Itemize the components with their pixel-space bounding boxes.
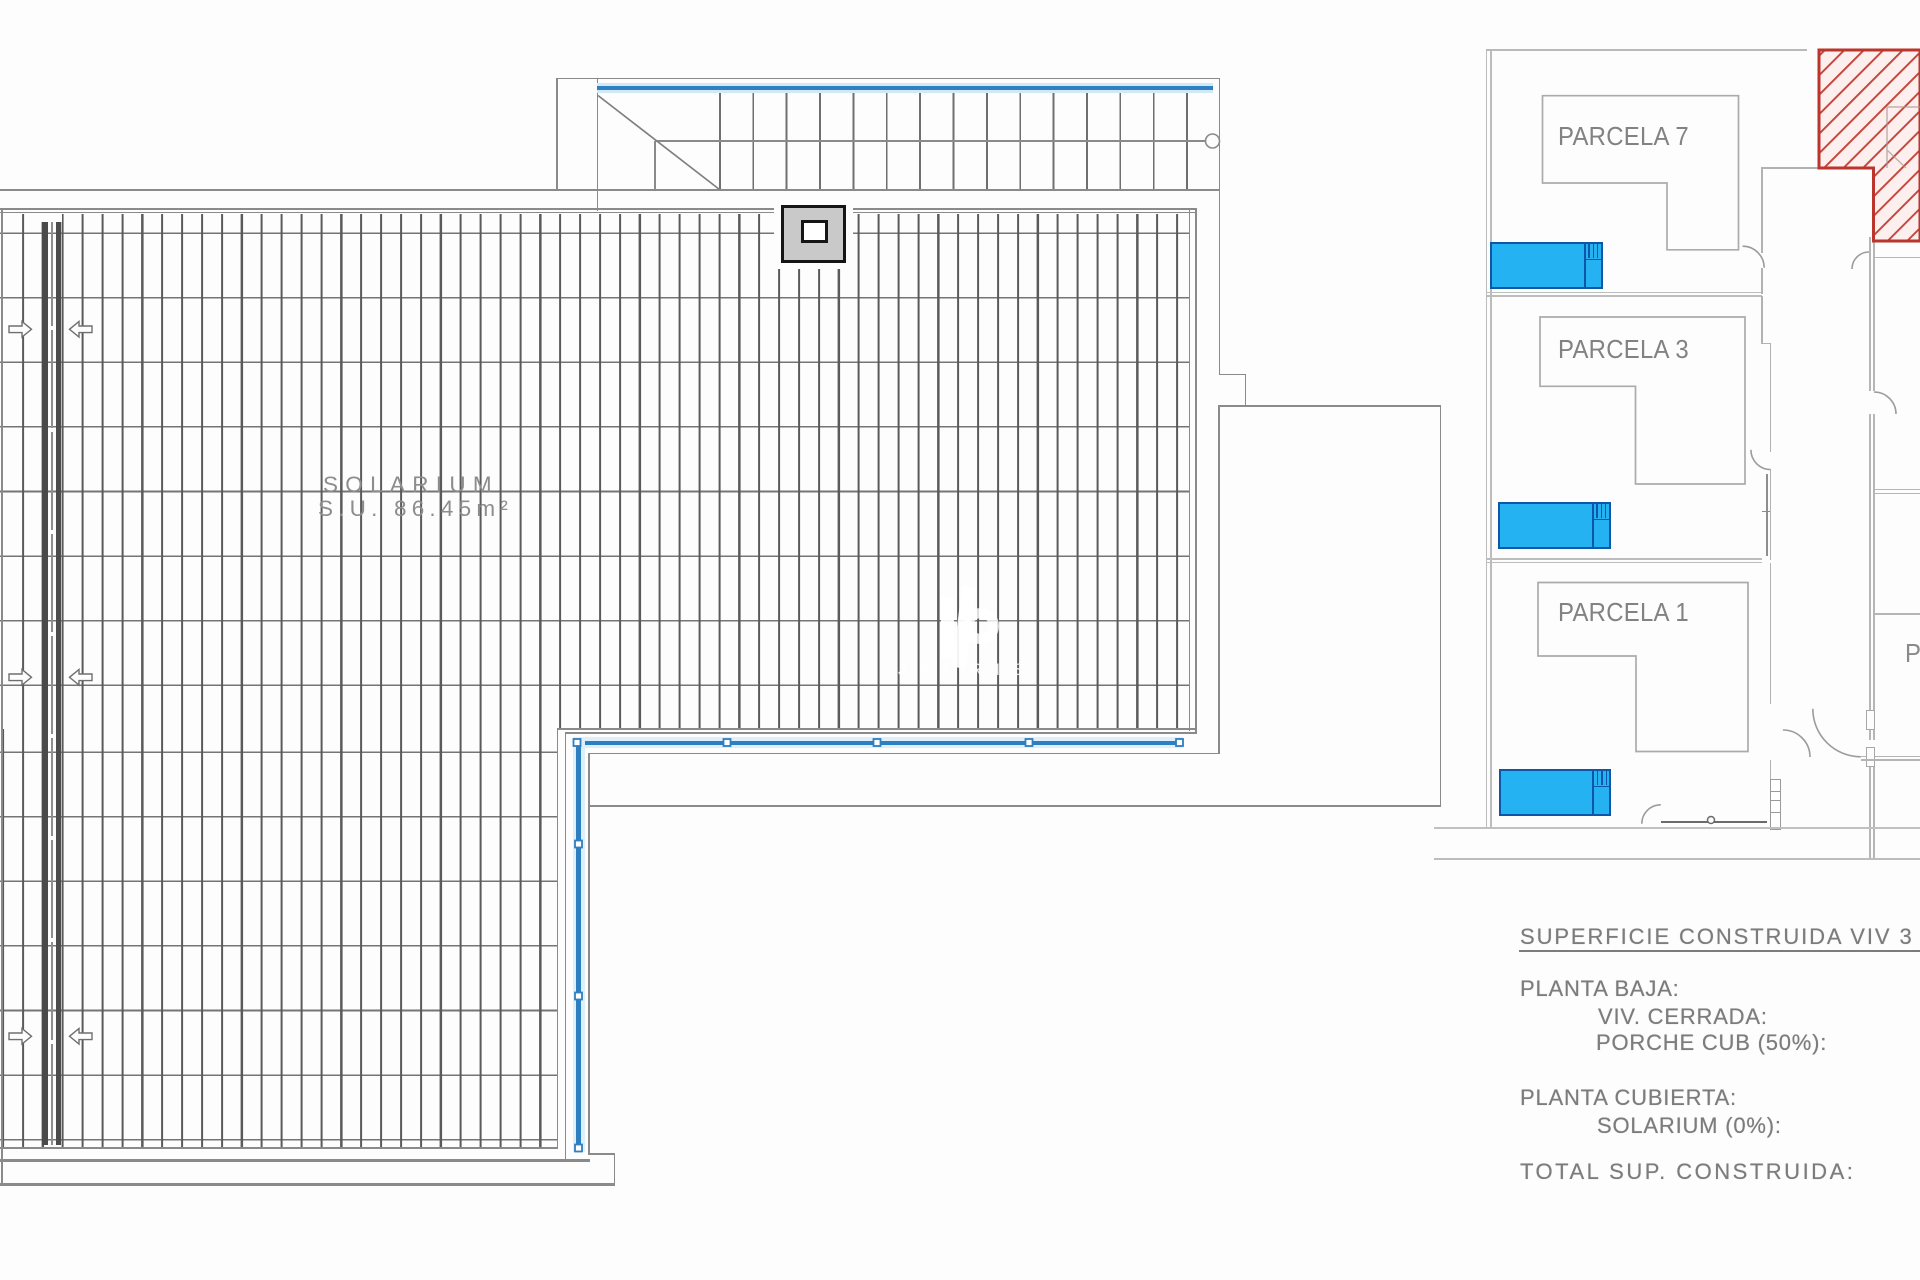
svg-text:PARCELA 7: PARCELA 7 bbox=[1558, 122, 1689, 151]
svg-text:SOLARIUM: SOLARIUM bbox=[323, 472, 499, 497]
svg-text:PARCELA 3: PARCELA 3 bbox=[1558, 335, 1689, 364]
svg-text:S.U. 86.45m²: S.U. 86.45m² bbox=[318, 496, 513, 521]
svg-text:P: P bbox=[1905, 639, 1920, 668]
svg-text:PARCELA 1: PARCELA 1 bbox=[1558, 598, 1689, 627]
